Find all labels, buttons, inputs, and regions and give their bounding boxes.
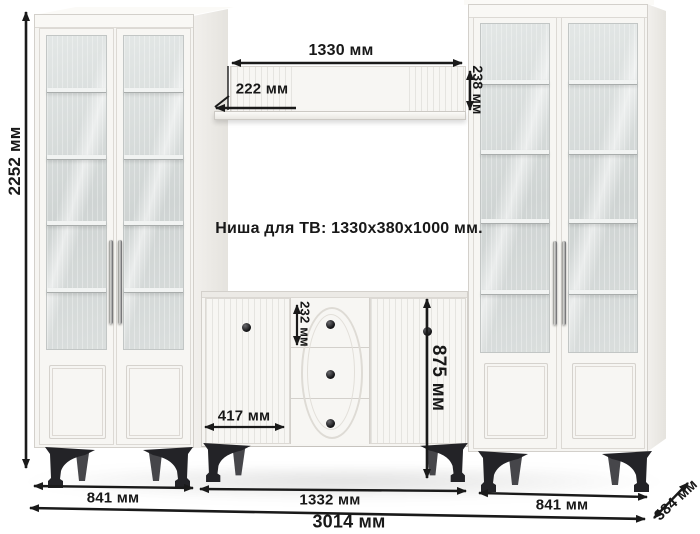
drawer-knob xyxy=(326,419,335,428)
door-knob xyxy=(423,327,432,336)
wall-shelf-board xyxy=(214,111,466,120)
cabinet-leg xyxy=(477,451,529,493)
right-cabinet-glass-left xyxy=(480,23,550,353)
dimension-door-width-label: 417 мм xyxy=(218,408,271,425)
chest-door-right xyxy=(370,298,466,444)
shelf-groove-right xyxy=(409,67,465,111)
left-cabinet-cornice xyxy=(35,15,193,28)
shelf-line xyxy=(569,219,637,224)
door-handle xyxy=(562,241,566,325)
right-cabinet-glass-right xyxy=(568,23,638,353)
lower-panel-frame xyxy=(49,365,106,439)
chest-leg xyxy=(202,443,252,483)
lower-panel-frame xyxy=(126,365,183,439)
shelf-line xyxy=(481,290,549,295)
dimension-shelf-height-label: 238 мм xyxy=(470,65,486,114)
dimension-chest-height-label: 875 мм xyxy=(427,345,449,411)
door-knob xyxy=(242,323,251,332)
shelf-line xyxy=(124,221,183,226)
shelf-line xyxy=(124,155,183,160)
dimension-center-width-label: 1332 мм xyxy=(299,492,360,509)
shelf-line xyxy=(124,288,183,293)
shelf-line xyxy=(569,150,637,155)
left-cabinet-glass-left xyxy=(46,35,107,350)
shelf-line xyxy=(47,221,106,226)
drawer-knob xyxy=(326,370,335,379)
dimension-left-width-label: 841 мм xyxy=(87,490,140,507)
dimension-shelf-width-label: 1330 мм xyxy=(308,42,373,60)
door-handle xyxy=(109,240,113,324)
left-cabinet-door-left xyxy=(39,28,114,445)
left-cabinet xyxy=(34,14,194,448)
door-handle xyxy=(118,240,122,324)
door-handle xyxy=(553,241,557,325)
right-cabinet xyxy=(468,4,648,452)
left-cabinet-glass-right xyxy=(123,35,184,350)
furniture-dimension-diagram: 2252 мм 1330 мм 222 мм 238 мм Ниша для Т… xyxy=(0,0,700,534)
shelf-line xyxy=(47,155,106,160)
shelf-line xyxy=(481,80,549,85)
cabinet-leg xyxy=(142,447,194,489)
shelf-line xyxy=(481,150,549,155)
cabinet-leg xyxy=(44,447,96,489)
dimension-total-width-label: 3014 мм xyxy=(312,512,385,533)
shelf-line xyxy=(569,80,637,85)
shelf-line xyxy=(124,88,183,93)
lower-panel-frame xyxy=(484,363,548,439)
drawer-knob xyxy=(326,320,335,329)
dimension-total-height-label: 2252 мм xyxy=(5,126,25,195)
dimension-drawer-height-label: 232 мм xyxy=(298,301,313,347)
cabinet-leg xyxy=(601,451,653,493)
right-cabinet-side-panel xyxy=(647,2,666,452)
shelf-line xyxy=(569,290,637,295)
tv-niche-label: Ниша для ТВ: 1330x380x1000 мм. xyxy=(215,220,483,238)
shelf-line xyxy=(47,288,106,293)
shelf-line xyxy=(47,88,106,93)
dimension-shelf-depth-label: 222 мм xyxy=(236,81,289,98)
shelf-line xyxy=(481,219,549,224)
left-cabinet-door-right xyxy=(116,28,191,445)
right-cabinet-door-right xyxy=(561,17,645,449)
lower-panel-frame xyxy=(572,363,636,439)
dimension-right-width-label: 841 мм xyxy=(536,497,589,514)
chest-leg xyxy=(419,443,469,483)
